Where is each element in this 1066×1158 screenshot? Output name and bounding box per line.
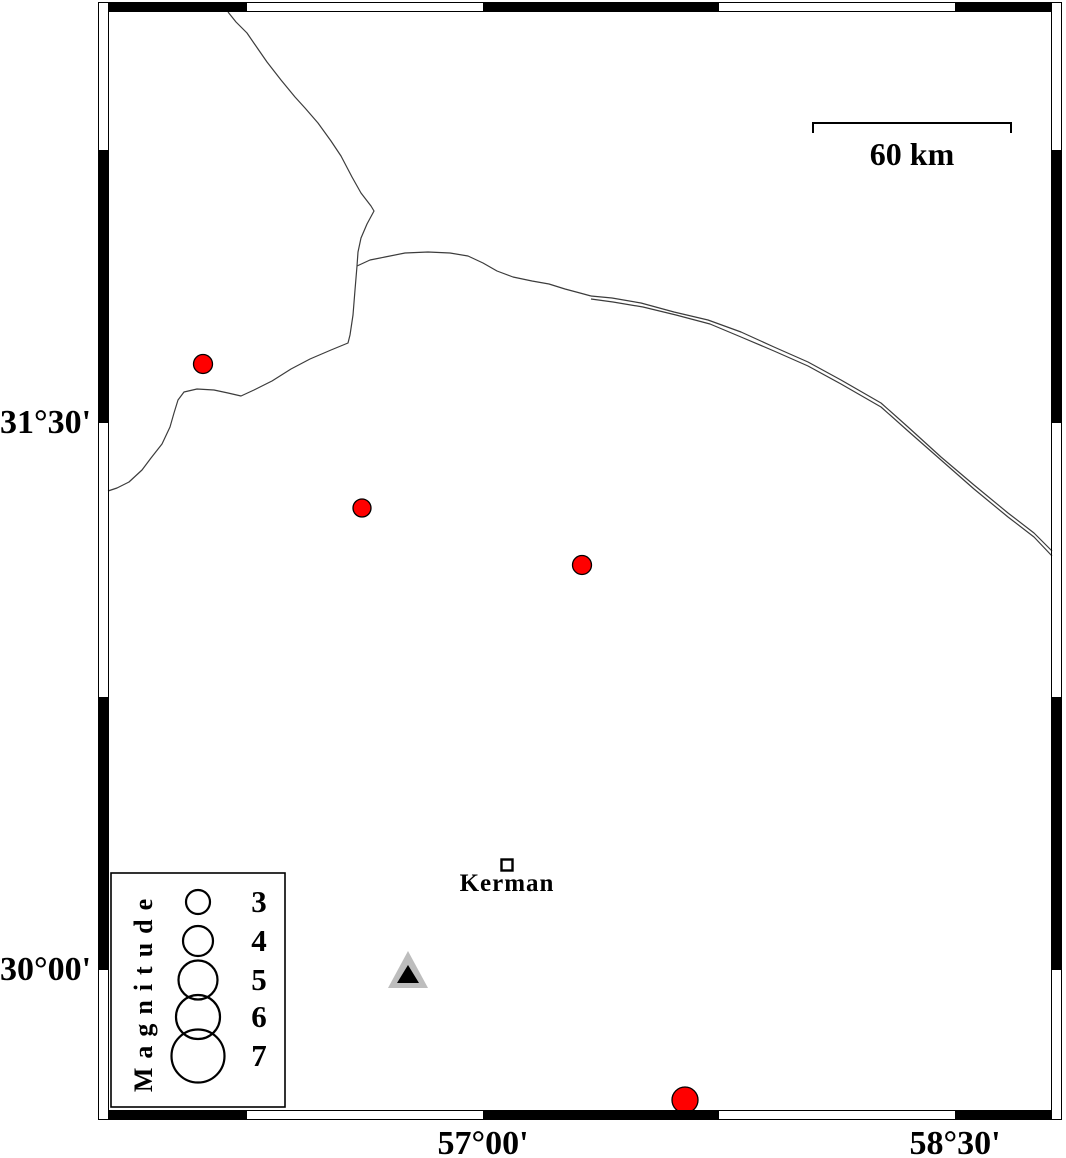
earthquake-marker xyxy=(573,556,592,575)
city-marker xyxy=(502,860,513,871)
frame-segment xyxy=(99,150,108,423)
earthquake-marker xyxy=(672,1087,698,1113)
frame-segment xyxy=(1052,697,1061,970)
longitude-label: 58°30' xyxy=(855,1122,1055,1158)
longitude-label: 57°00' xyxy=(383,1122,583,1158)
legend-title: Magnitude xyxy=(127,886,161,1096)
latitude-label: 30°00' xyxy=(0,948,90,992)
scale-bar xyxy=(813,123,1011,133)
frame-segment xyxy=(108,3,247,12)
border-line xyxy=(357,252,591,296)
border-line xyxy=(591,296,1052,551)
frame-segment xyxy=(483,3,719,12)
legend-value: 7 xyxy=(229,1035,289,1077)
city-marker-icon xyxy=(502,860,513,871)
seismicity-map: 60 km Kerman Magnitude 3456731°30'30°00'… xyxy=(0,0,1066,1158)
legend-value: 4 xyxy=(229,920,289,962)
scale-bar-label: 60 km xyxy=(812,136,1012,173)
border-lines xyxy=(108,12,1052,556)
earthquake-marker xyxy=(353,499,371,517)
border-line xyxy=(108,12,374,491)
border-line xyxy=(591,299,1052,556)
frame-segment xyxy=(955,3,1052,12)
latitude-label: 31°30' xyxy=(0,401,90,445)
city-label: Kerman xyxy=(407,870,607,898)
station-marker xyxy=(388,951,428,988)
earthquake-marker xyxy=(194,355,213,374)
frame-segment xyxy=(1052,150,1061,423)
frame-segment xyxy=(955,1111,1052,1120)
frame-segment xyxy=(99,697,108,970)
legend-value: 6 xyxy=(229,996,289,1038)
frame-segment xyxy=(483,1111,719,1120)
frame-segment xyxy=(108,1111,247,1120)
legend-value: 3 xyxy=(229,881,289,923)
legend-value: 5 xyxy=(229,959,289,1001)
